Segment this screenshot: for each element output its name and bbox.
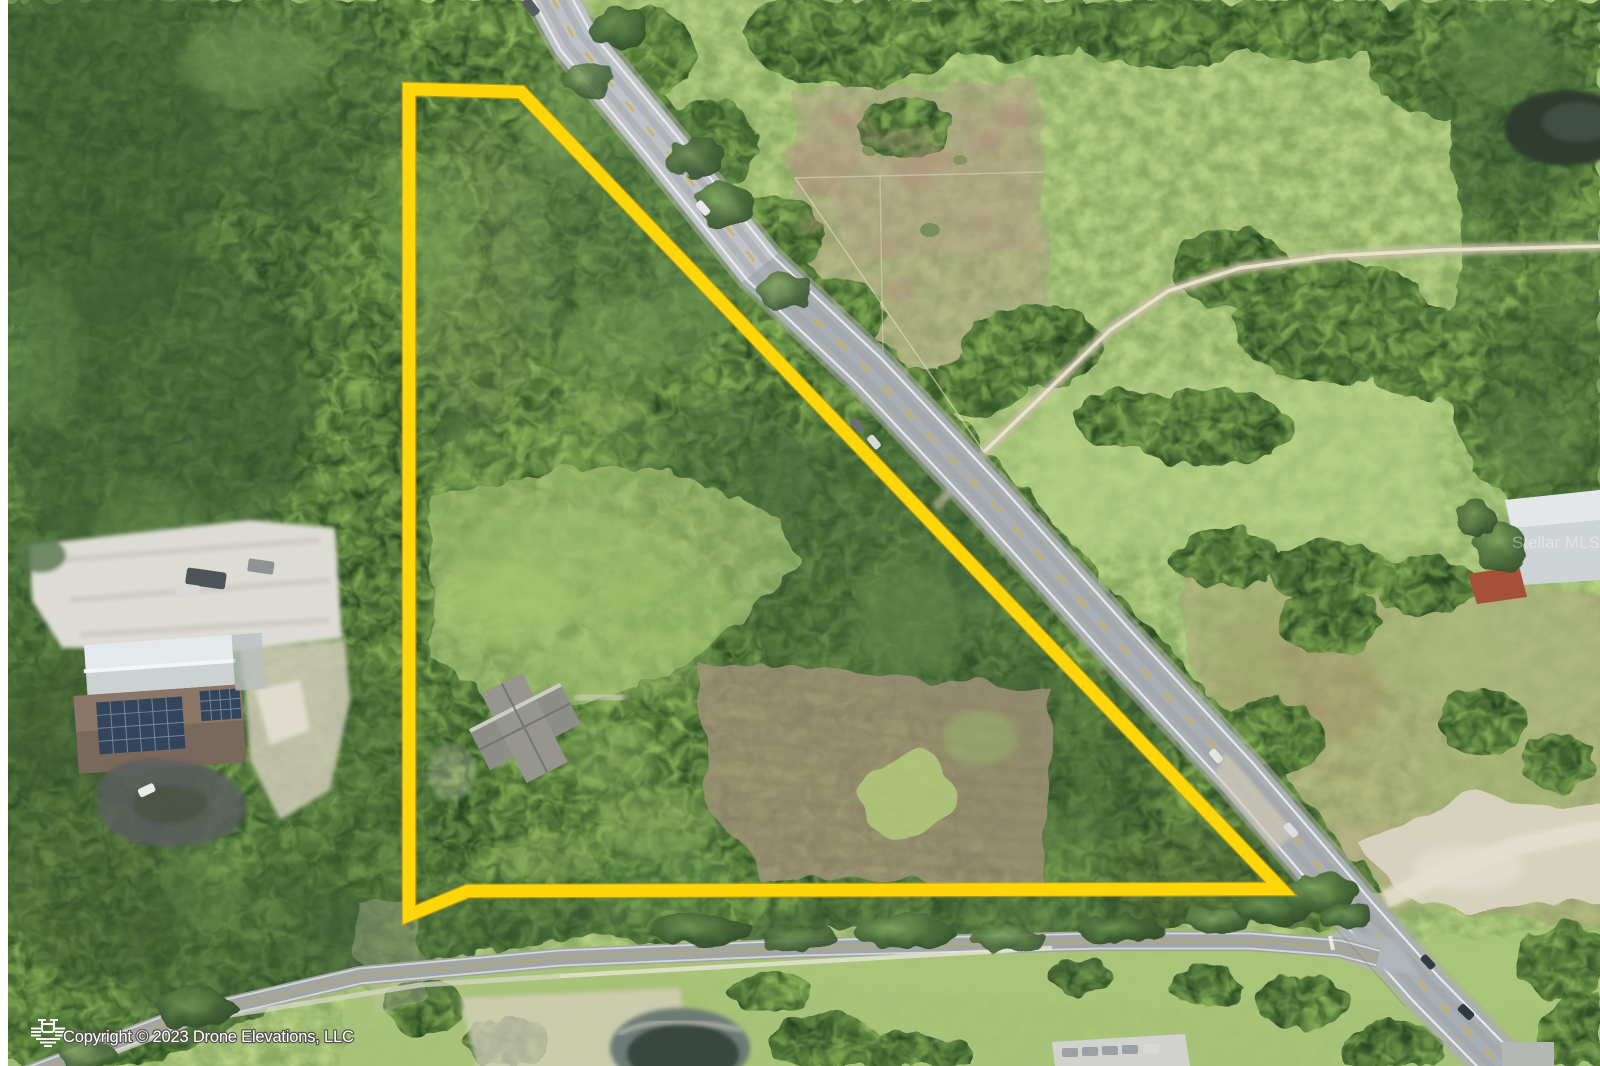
svg-text:Stellar MLS: Stellar MLS [1512, 533, 1600, 552]
svg-text:Copyright © 2023 Drone Elevati: Copyright © 2023 Drone Elevations, LLC [63, 1028, 354, 1046]
